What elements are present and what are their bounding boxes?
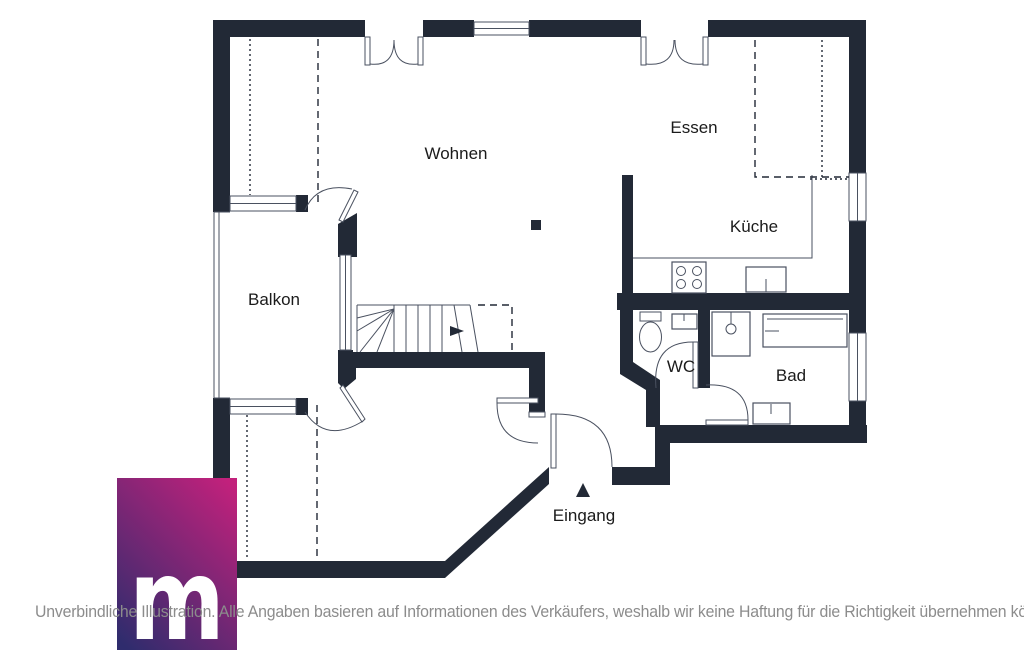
room-label-wc: WC — [667, 357, 695, 377]
double-door-top-right — [641, 37, 708, 65]
stair-direction-arrow — [450, 326, 464, 336]
bathtub-icon — [763, 314, 847, 347]
doors — [305, 37, 748, 468]
room-label-wohnen: Wohnen — [424, 144, 487, 164]
window-balcony-bottom — [230, 399, 296, 414]
wc-washbasin-icon — [672, 314, 697, 329]
bath-door — [706, 385, 748, 425]
room-label-balkon: Balkon — [248, 290, 300, 310]
window-balcony-top — [230, 196, 296, 211]
window-right-lower — [849, 333, 866, 401]
walls — [213, 20, 867, 578]
shower-icon — [712, 312, 750, 356]
balcony-door-upper — [305, 188, 358, 222]
entrance-arrow-icon — [576, 483, 590, 497]
disclaimer-text: Unverbindliche Illustration. Alle Angabe… — [35, 603, 1024, 622]
toilet-icon — [640, 312, 662, 352]
stairs-icon — [357, 305, 512, 352]
stove-icon — [672, 262, 706, 293]
balcony-door-lower — [305, 385, 365, 431]
room-label-bad: Bad — [776, 366, 806, 386]
balcony-railing — [214, 212, 230, 398]
brand-logo: m — [117, 478, 237, 650]
kitchen-counter — [633, 175, 812, 258]
window-top-wall — [474, 22, 529, 35]
brand-logo-letter: m — [129, 545, 225, 657]
double-door-top-left — [365, 37, 423, 65]
kitchen-sink-icon — [746, 267, 786, 292]
window-right-upper — [849, 173, 866, 221]
room-label-essen: Essen — [670, 118, 717, 138]
window-balcony-right — [340, 255, 351, 350]
column-marker — [531, 220, 541, 230]
room-label-kueche: Küche — [730, 217, 778, 237]
bath-washbasin-icon — [753, 403, 790, 424]
entrance-door — [551, 414, 612, 468]
entrance-label: Eingang — [553, 506, 615, 526]
